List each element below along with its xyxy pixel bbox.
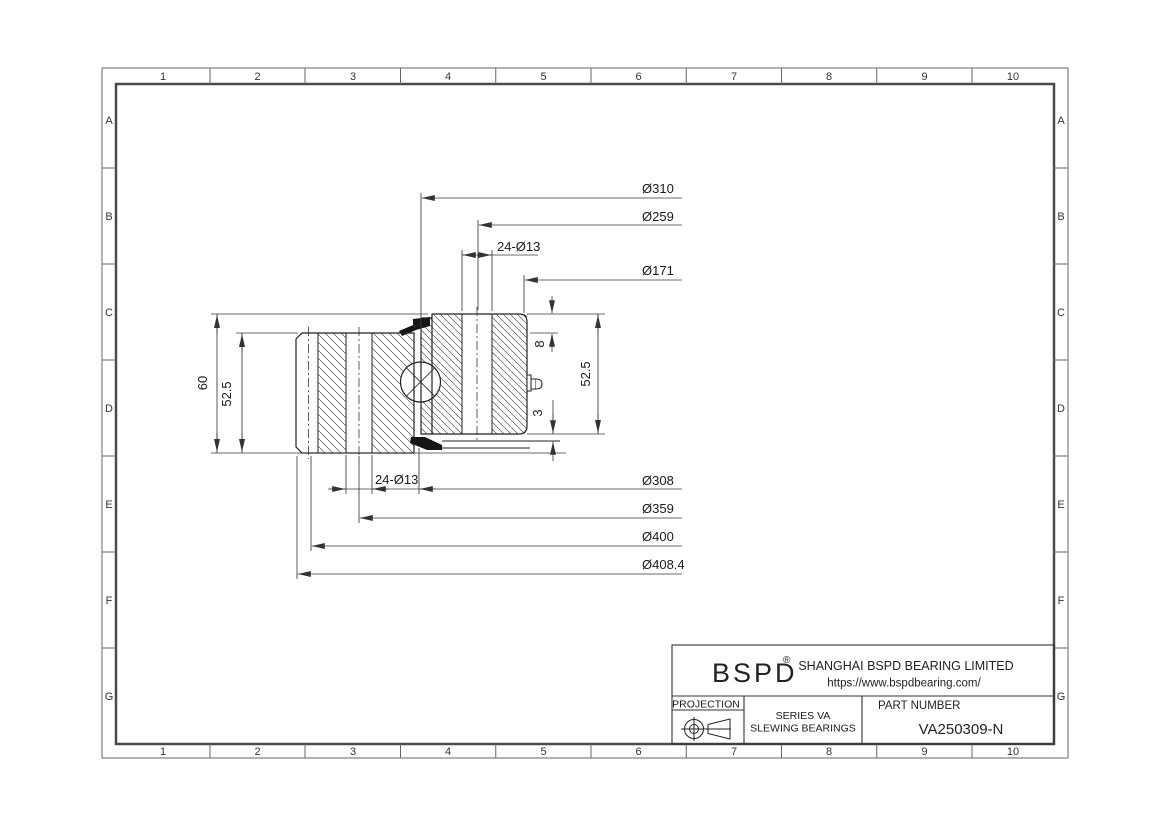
left-ring-hatch <box>318 333 414 453</box>
dim-dia310: Ø310 <box>642 181 674 196</box>
series-line1: SERIES VA <box>776 710 831 722</box>
grid-label: 2 <box>254 71 260 83</box>
grid-label: A <box>105 115 113 127</box>
dim-dia400: Ø400 <box>642 529 674 544</box>
drawing-canvas: 1 2 3 4 5 6 7 8 9 10 1 2 3 4 5 6 7 8 9 1… <box>0 0 1170 827</box>
grid-label: 8 <box>826 71 832 83</box>
title-block: BSPD ® SHANGHAI BSPD BEARING LIMITED htt… <box>672 645 1054 744</box>
company-name: SHANGHAI BSPD BEARING LIMITED <box>798 659 1013 673</box>
dim-dia259: Ø259 <box>642 209 674 224</box>
grid-label: G <box>1057 691 1066 703</box>
dim-height-left: 52.5 <box>219 381 234 406</box>
grid-label: 8 <box>826 746 832 758</box>
dim-height-right: 52.5 <box>578 361 593 386</box>
grid-label: 3 <box>350 746 356 758</box>
dim-dia408: Ø408.4 <box>642 557 685 572</box>
grid-label: D <box>1057 403 1065 415</box>
grid-label: 3 <box>350 71 356 83</box>
lower-seal <box>410 437 442 450</box>
part-number-value: VA250309-N <box>919 721 1004 738</box>
grid-label: 5 <box>540 71 546 83</box>
grid-row-labels-left: A B C D E F G <box>105 115 114 703</box>
drawing-sheet: 1 2 3 4 5 6 7 8 9 10 1 2 3 4 5 6 7 8 9 1… <box>0 0 1170 827</box>
dim-dia308: Ø308 <box>642 473 674 488</box>
sheet-border: 1 2 3 4 5 6 7 8 9 10 1 2 3 4 5 6 7 8 9 1… <box>102 68 1068 758</box>
grid-label: 10 <box>1007 71 1019 83</box>
dim-height-total: 60 <box>195 376 210 390</box>
dim-step-top: 8 <box>532 340 547 347</box>
grid-col-labels-bottom: 1 2 3 4 5 6 7 8 9 10 <box>160 746 1019 758</box>
grid-label: 10 <box>1007 746 1019 758</box>
company-website: https://www.bspdbearing.com/ <box>827 678 981 690</box>
grid-label: 1 <box>160 71 166 83</box>
grid-label: A <box>1057 115 1065 127</box>
grid-label: 7 <box>731 746 737 758</box>
grid-label: 5 <box>540 746 546 758</box>
grid-label: E <box>1057 499 1064 511</box>
series-line2: SLEWING BEARINGS <box>750 723 856 735</box>
grid-label: 1 <box>160 746 166 758</box>
grid-label: 7 <box>731 71 737 83</box>
grid-label: 6 <box>635 746 641 758</box>
grid-label: C <box>1057 307 1065 319</box>
dim-dia171: Ø171 <box>642 263 674 278</box>
bearing-section-view <box>296 307 560 459</box>
grid-label: G <box>105 691 114 703</box>
dim-holes-top: 24-Ø13 <box>497 239 540 254</box>
grease-nipple <box>527 375 542 391</box>
dim-step-bottom: 3 <box>530 409 545 416</box>
part-number-label: PART NUMBER <box>878 700 960 712</box>
projection-label: PROJECTION <box>672 699 740 711</box>
grid-label: 4 <box>445 746 451 758</box>
grid-label: C <box>105 307 113 319</box>
grid-label: B <box>105 211 112 223</box>
grid-label: 9 <box>921 746 927 758</box>
grid-label: 6 <box>635 71 641 83</box>
grid-label: 9 <box>921 71 927 83</box>
grid-label: F <box>1058 595 1065 607</box>
grid-label: E <box>105 499 112 511</box>
grid-label: F <box>106 595 113 607</box>
grid-ticks <box>102 68 1068 758</box>
grid-label: 4 <box>445 71 451 83</box>
dim-holes-bottom: 24-Ø13 <box>375 472 418 487</box>
dim-dia359: Ø359 <box>642 501 674 516</box>
grid-col-labels-top: 1 2 3 4 5 6 7 8 9 10 <box>160 71 1019 83</box>
grid-row-labels-right: A B C D E F G <box>1057 115 1066 703</box>
grid-label: D <box>105 403 113 415</box>
registered-trademark-icon: ® <box>783 655 791 666</box>
grid-label: B <box>1057 211 1064 223</box>
grid-label: 2 <box>254 746 260 758</box>
projection-symbol-icon <box>681 717 731 741</box>
outer-border <box>102 68 1068 758</box>
